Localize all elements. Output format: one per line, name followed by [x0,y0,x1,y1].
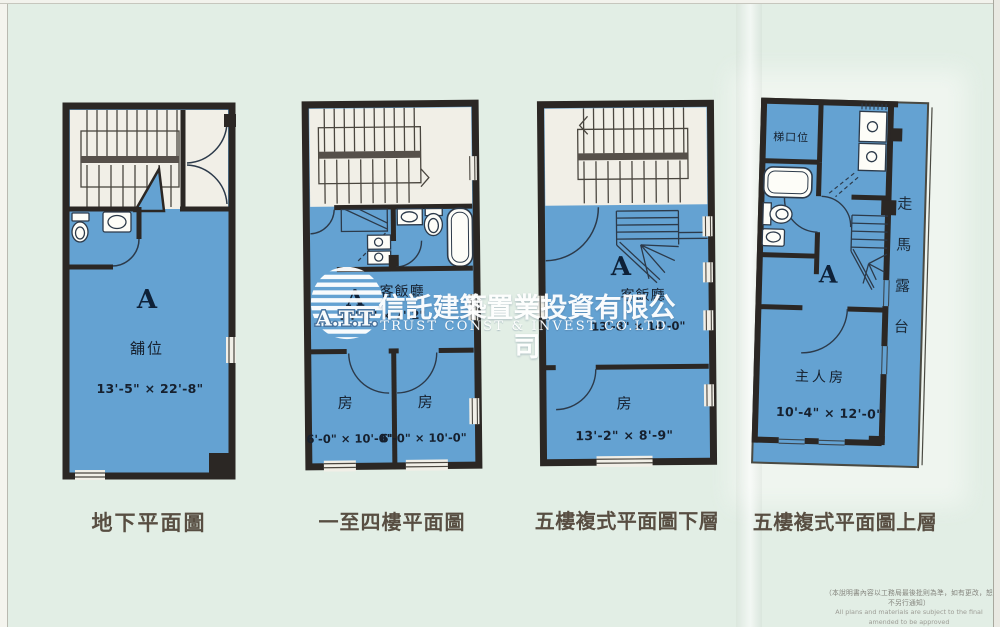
kitchen-sink-icon [858,111,887,171]
window-gap [406,459,448,470]
stair-landing-rail [81,156,179,163]
duplex-lower-caption: 五樓複式平面圖下層 [529,505,725,534]
window-gap [75,470,105,480]
stair-hall-label: 梯口位 [773,131,809,143]
toilet-icon [72,213,89,242]
disclaimer-zh: （本說明書內容以工務局最後批則為準，如有更改，恕不另行通知） [822,588,996,608]
duplex-lower-plan: A 客飯廳 13'-8" × 14'-0" 房 13'-2" × 8'-9" [535,98,718,468]
bathtub-icon [763,167,812,198]
kitchen-sink-icon [367,235,390,264]
ground-floor-plan: A 舖位 13'-5" × 22'-8" [61,101,237,481]
bathroom-sink-icon [397,209,422,225]
bedroom-dimension: 13'-2" × 8'-9" [575,429,673,442]
sink-icon [762,229,784,247]
living-dining-label: 客飯廳 [380,285,425,299]
bathtub-icon [447,208,473,266]
ground-floor-caption: 地下平面圖 [61,507,237,537]
disclaimer-en: All plans and materials are subject to t… [822,608,996,627]
duplex-upper-plan: 梯口位 A 主人房 10'-4" × 12'-0" 走馬露台 [748,94,944,479]
page-edge-left [0,0,8,627]
unit-label: A [346,287,364,310]
master-bedroom-label: 主人房 [795,370,846,385]
stair-landing-rail [319,151,421,159]
brochure-page: A 舖位 13'-5" × 22'-8" [0,0,1000,627]
shop-label: 舖位 [130,342,164,357]
unit-label: A [137,287,157,313]
sink-icon [103,212,131,232]
typical-floor-caption: 一至四樓平面圖 [302,506,482,535]
window-gap [324,460,356,471]
unit-label: A [819,262,838,287]
living-dining-dimension: 13'-8" × 14'-0" [591,321,685,333]
shop-dimension: 13'-5" × 22'-8" [97,383,204,396]
stair-landing-rail [578,152,688,160]
bedroom1-label: 房 [338,396,355,411]
duplex-upper-caption: 五樓複式平面圖上層 [747,506,943,535]
unit-label: A [611,254,631,280]
page-edge-top [0,0,1000,4]
window-gap [597,456,653,467]
bedroom2-label: 房 [418,395,435,410]
living-dining-label: 客飯廳 [621,289,666,303]
disclaimer: （本說明書內容以工務局最後批則為準，如有更改，恕不另行通知） All plans… [822,588,996,627]
column [209,453,232,476]
master-bedroom-dimension: 10'-4" × 12'-0" [776,406,883,421]
bedroom-label: 房 [616,396,633,411]
duplex-upper-drawing [748,94,944,479]
toilet-icon [424,208,442,235]
page-edge-right [993,0,1000,627]
typical-floor-plan: A 客飯廳 14'-0" × 7'-2" 房 6'-0" × 10'-0" 房 … [300,98,484,472]
living-dining-dimension: 14'-0" × 7'-2" [339,310,425,322]
bedroom2-dimension: 6'-0" × 10'-0" [380,432,466,444]
